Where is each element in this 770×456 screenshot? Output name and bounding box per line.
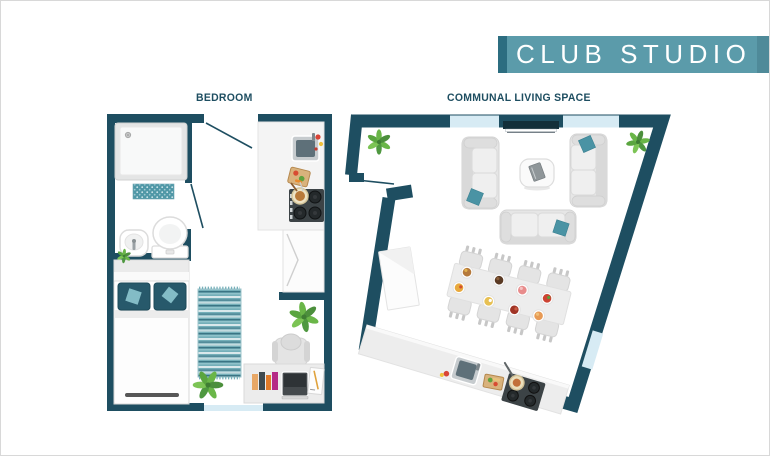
kitchen-sink: [292, 133, 323, 161]
bed: [114, 281, 189, 404]
desk: [244, 364, 324, 403]
desk-plant: [288, 301, 319, 332]
throw-rug: [198, 288, 241, 378]
dining-table-set: [442, 244, 576, 345]
kitchenette-counter: [258, 122, 324, 230]
communal-window: [450, 116, 499, 128]
pillow: [154, 283, 186, 310]
bath-mat: [133, 184, 174, 199]
communal-cutting-board: [483, 374, 504, 390]
books: [252, 372, 278, 390]
pillow: [118, 283, 150, 310]
sideboard-cabinet: [379, 247, 420, 310]
floorplan-canvas: [1, 1, 770, 456]
floorplan-page: CLUB STUDIO BEDROOM COMMUNAL LIVING SPAC…: [0, 0, 770, 456]
bathroom-door-swing: [191, 184, 203, 228]
headboard-shelf: [114, 260, 189, 281]
bedroom-window: [204, 405, 263, 411]
duvet: [114, 311, 189, 404]
entrance-door-swing: [206, 123, 252, 148]
sofa-bottom: [500, 210, 576, 244]
notepad: [308, 367, 325, 394]
shower-tray: [115, 123, 187, 180]
corner-plant-left: [364, 127, 394, 157]
sofa-left: [462, 137, 499, 209]
coffee-table: [520, 159, 554, 191]
laptop: [282, 372, 308, 399]
toilet: [152, 217, 188, 258]
wardrobe: [283, 230, 324, 292]
desk-chair: [272, 334, 310, 366]
communal-window: [563, 116, 619, 128]
communal-unit: [349, 115, 662, 418]
bed-foot-bar: [125, 393, 179, 397]
wall-tv: [503, 121, 559, 133]
bedroom-unit: [107, 114, 332, 411]
sofa-right: [570, 134, 607, 207]
